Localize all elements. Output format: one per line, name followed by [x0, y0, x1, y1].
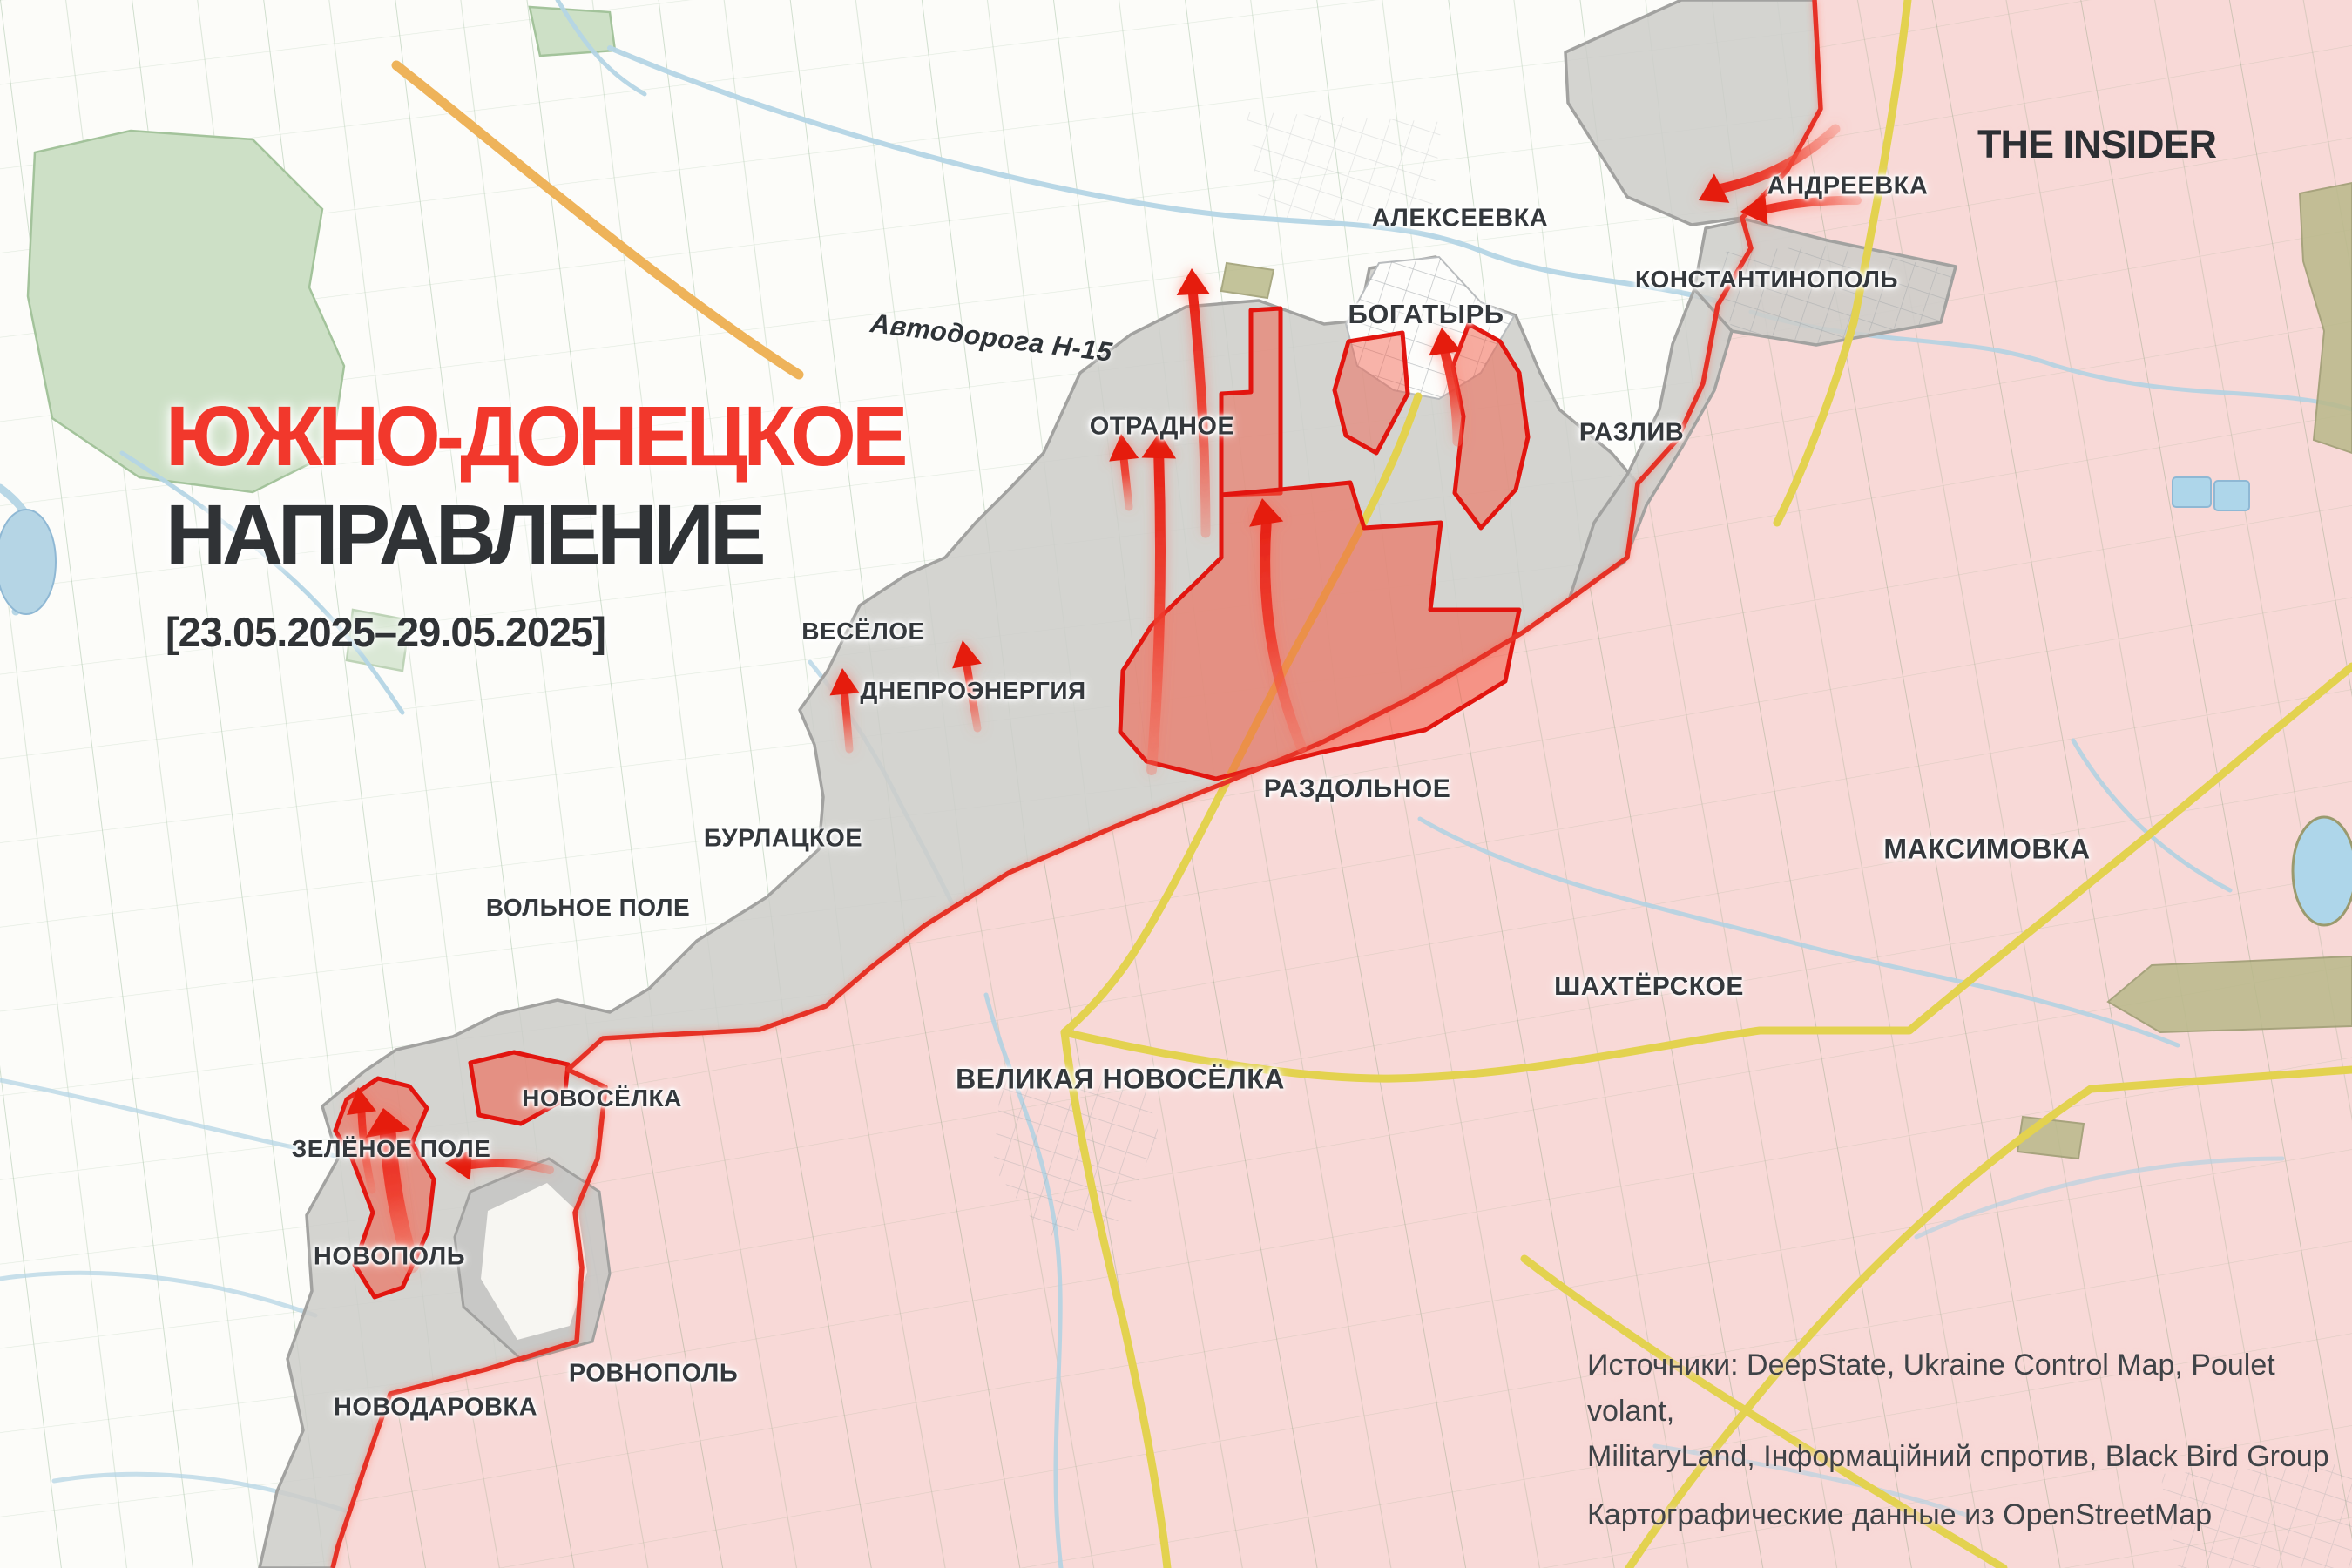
lakes-twin — [2173, 477, 2249, 510]
sources-block: Источники: DeepState, Ukraine Control Ma… — [1587, 1342, 2352, 1538]
title-line1: ЮЖНО-ДОНЕЦКОЕ — [166, 394, 904, 478]
map-canvas — [0, 0, 2352, 1568]
alekseevka-town — [1246, 112, 1442, 225]
sources-line2: MilitaryLand, Інформаційний спротив, Bla… — [1587, 1434, 2352, 1480]
title-block: ЮЖНО-ДОНЕЦКОЕ НАПРАВЛЕНИЕ [23.05.2025–29… — [166, 394, 904, 652]
title-date-range: [23.05.2025–29.05.2025] — [166, 612, 904, 652]
title-line2: НАПРАВЛЕНИЕ — [166, 492, 904, 577]
map-screenshot: АЛЕКСЕЕВКААНДРЕЕВКАКОНСТАНТИНОПОЛЬБОГАТЫ… — [0, 0, 2352, 1568]
lake — [0, 510, 56, 614]
sources-line3: Картографические данные из OpenStreetMap — [1587, 1492, 2352, 1538]
sources-line1: Источники: DeepState, Ukraine Control Ma… — [1587, 1342, 2352, 1434]
the-insider-logo: THE INSIDER — [1977, 122, 2216, 167]
lake-east — [2293, 817, 2352, 925]
